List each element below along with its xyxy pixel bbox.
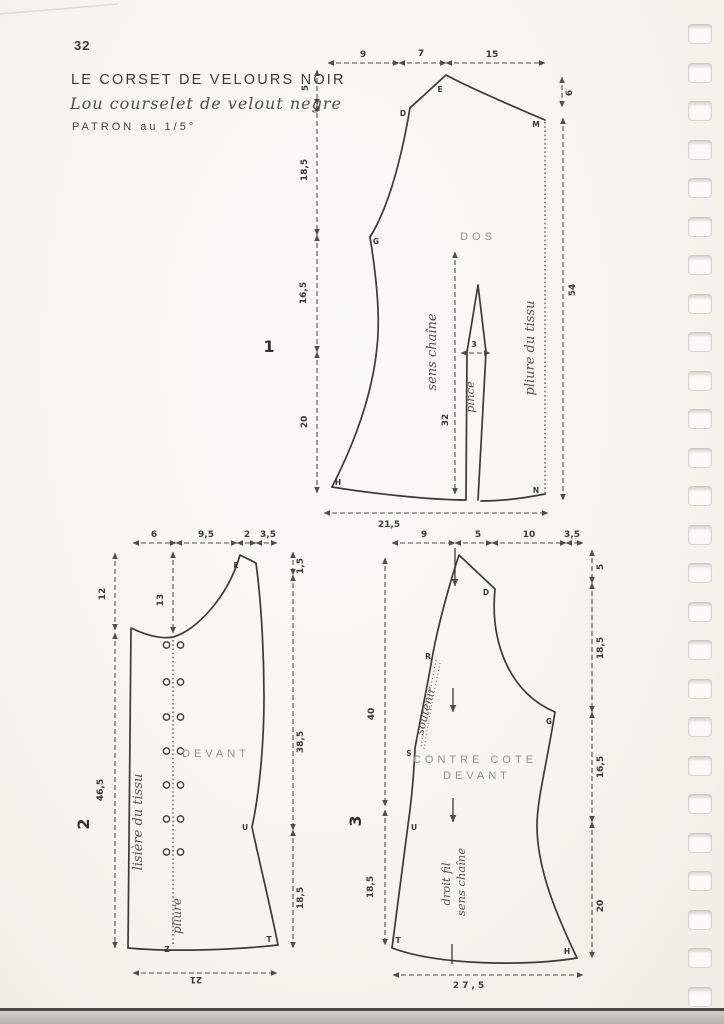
dim-label: 9 bbox=[421, 530, 427, 540]
dim-label: 16,5 bbox=[299, 282, 309, 304]
dim-label: 7 bbox=[418, 49, 424, 59]
dim-label: 21,5 bbox=[378, 520, 400, 530]
dim-label: 20 bbox=[300, 416, 310, 429]
dim-label: 1,5 bbox=[296, 558, 306, 574]
grain-direction-label: sens chaîne bbox=[425, 313, 440, 390]
piece-name-label: DEVANT bbox=[443, 770, 511, 782]
diagram-devant: 2 6 9,5 2 bbox=[74, 530, 306, 984]
point-label: T bbox=[266, 935, 272, 944]
page-corner-crease bbox=[0, 4, 118, 14]
binding-hole bbox=[688, 795, 712, 814]
piece-name-label: CONTRE COTE bbox=[413, 754, 537, 766]
figure-number: 1 bbox=[263, 337, 274, 356]
dos-bottom-edge-left bbox=[332, 487, 466, 500]
eyelet-mark bbox=[177, 849, 183, 855]
binding-hole bbox=[688, 64, 712, 83]
binding-hole bbox=[688, 25, 712, 44]
dos-shoulder-neck-edge bbox=[410, 75, 545, 120]
pattern-drawing: 1 9 7 15 5 18,5 16,5 2 bbox=[0, 0, 724, 1024]
dim-label: 3,5 bbox=[260, 530, 276, 540]
binding-hole bbox=[688, 641, 712, 660]
dim-label: 9 bbox=[360, 50, 366, 60]
dim-label: 2 bbox=[244, 530, 250, 540]
binding-hole bbox=[688, 256, 712, 275]
point-label: S bbox=[406, 749, 411, 758]
dim-label: 5 bbox=[301, 85, 311, 91]
binding-hole bbox=[688, 526, 712, 545]
point-label: T bbox=[395, 936, 401, 945]
point-label: U bbox=[242, 823, 248, 832]
binding-hole bbox=[688, 949, 712, 968]
dim-label: 20 bbox=[596, 900, 606, 913]
dim-label: 46,5 bbox=[96, 779, 106, 801]
point-label: E bbox=[437, 85, 442, 94]
dos-armhole-edge bbox=[370, 108, 410, 237]
eyelet-mark bbox=[177, 782, 183, 788]
binding-hole bbox=[688, 333, 712, 352]
dim-label: 6 bbox=[565, 90, 575, 96]
binding-hole bbox=[688, 410, 712, 429]
binding-hole bbox=[688, 911, 712, 930]
binding-hole bbox=[688, 449, 712, 468]
dim-label: 10 bbox=[523, 530, 536, 540]
dim-label: 18,5 bbox=[366, 876, 376, 898]
binding-hole bbox=[688, 372, 712, 391]
binding-hole bbox=[688, 603, 712, 622]
dim-label: 3 bbox=[471, 340, 477, 349]
dos-side-seam bbox=[332, 237, 378, 487]
dim-label: 12 bbox=[98, 588, 108, 601]
dim-label: 5 bbox=[596, 564, 606, 570]
dos-bottom-edge-right bbox=[481, 494, 545, 501]
eyelet-mark bbox=[177, 642, 183, 648]
binding-hole bbox=[688, 102, 712, 121]
selvage-label: lisière du tissu bbox=[131, 774, 146, 871]
dim-label: 6 bbox=[151, 530, 157, 540]
eyelet-mark bbox=[163, 748, 169, 754]
point-label: D bbox=[400, 109, 406, 118]
dim-label: 18,5 bbox=[296, 887, 306, 909]
scanned-book-page: 32 LE CORSET DE VELOURS NOIR Lou coursel… bbox=[0, 0, 724, 1024]
figure-number: 2 bbox=[74, 818, 93, 829]
binding-hole bbox=[688, 988, 712, 1007]
dim-label: 9,5 bbox=[198, 530, 214, 540]
binding-hole bbox=[688, 680, 712, 699]
eyelet-mark bbox=[177, 714, 183, 720]
binding-hole bbox=[688, 564, 712, 583]
piece-name-label: DEVANT bbox=[182, 748, 250, 760]
point-label: H bbox=[335, 478, 341, 487]
point-label: M bbox=[532, 120, 539, 129]
binding-hole bbox=[688, 295, 712, 314]
dim-label: 54 bbox=[568, 284, 578, 297]
dim-label: 21 bbox=[190, 974, 203, 984]
dim-label: 27,5 bbox=[453, 981, 487, 991]
point-label: E bbox=[233, 561, 238, 570]
fold-label: pliure bbox=[170, 898, 184, 934]
eyelet-mark bbox=[163, 816, 169, 822]
dim-label: 18,5 bbox=[300, 159, 310, 181]
eyelet-mark bbox=[163, 714, 169, 720]
diagram-dos: 1 9 7 15 5 18,5 16,5 2 bbox=[263, 49, 578, 530]
page-bottom-edge bbox=[0, 1008, 724, 1024]
eyelet-mark bbox=[163, 849, 169, 855]
eyelet-mark bbox=[177, 679, 183, 685]
point-label: N bbox=[533, 486, 539, 495]
piece-name-label: DOS bbox=[460, 231, 496, 243]
support-label: soutenir bbox=[412, 684, 438, 736]
point-label: R bbox=[425, 652, 431, 661]
binding-hole bbox=[688, 141, 712, 160]
point-label: H bbox=[564, 947, 570, 956]
dim-label: 32 bbox=[441, 414, 451, 427]
dim-label: 3,5 bbox=[564, 530, 580, 540]
point-label: U bbox=[411, 823, 417, 832]
dim-label: 15 bbox=[486, 50, 499, 60]
grain-direction-label: sens chaîne bbox=[454, 848, 468, 916]
point-label: Z bbox=[164, 945, 170, 954]
grain-direction-label: droit fil bbox=[439, 862, 453, 905]
binding-hole bbox=[688, 834, 712, 853]
dart-label: pince bbox=[463, 381, 477, 413]
diagram-contre-cote-devant: 3 9 5 10 3,5 40 18,5 5 bbox=[346, 530, 606, 991]
dim-label: 5 bbox=[475, 530, 481, 540]
point-label: G bbox=[546, 717, 552, 726]
binding-hole bbox=[688, 757, 712, 776]
fold-label: pliure du tissu bbox=[523, 301, 538, 396]
binding-hole bbox=[688, 218, 712, 237]
binding-hole bbox=[688, 718, 712, 737]
eyelet-mark bbox=[163, 679, 169, 685]
eyelet-mark bbox=[177, 816, 183, 822]
dim-label: 16,5 bbox=[596, 756, 606, 778]
eyelet-mark bbox=[163, 782, 169, 788]
dim-label: 40 bbox=[367, 708, 377, 721]
figure-number: 3 bbox=[346, 815, 365, 826]
binding-hole bbox=[688, 179, 712, 198]
point-label: D bbox=[483, 588, 489, 597]
point-label: G bbox=[373, 237, 379, 246]
binding-hole bbox=[688, 487, 712, 506]
eyelet-mark bbox=[163, 642, 169, 648]
dim-label: 18,5 bbox=[596, 637, 606, 659]
binding-hole bbox=[688, 872, 712, 891]
dim-label: 13 bbox=[156, 594, 166, 607]
dim-label: 38,5 bbox=[296, 731, 306, 753]
